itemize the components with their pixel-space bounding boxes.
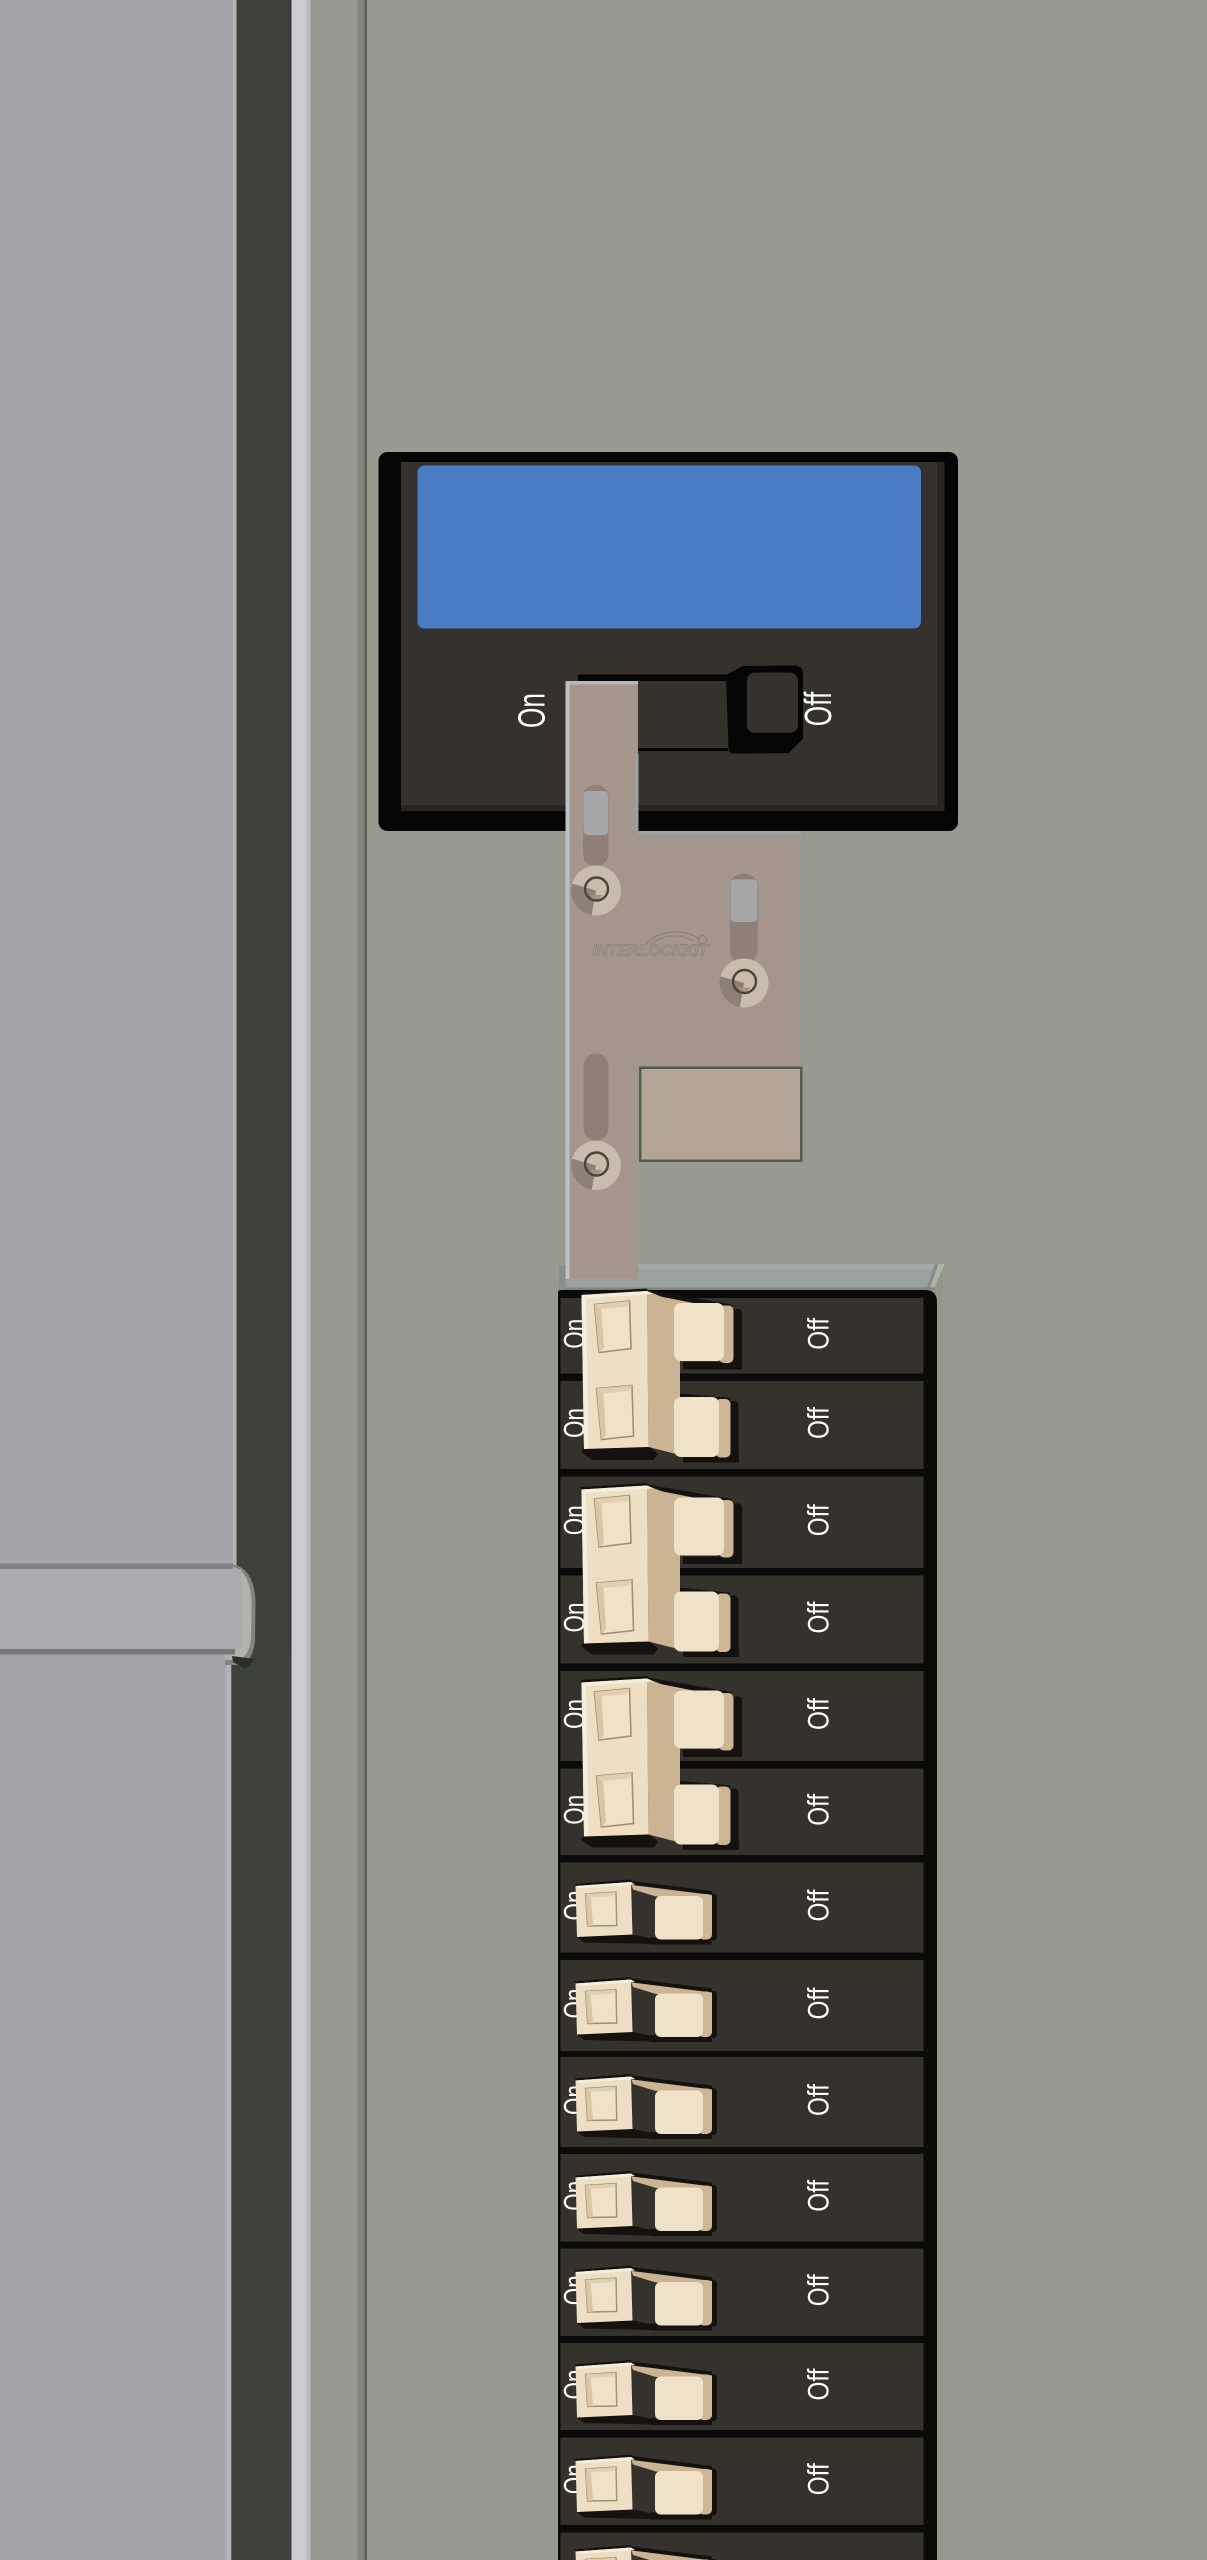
svg-text:Off: Off: [803, 1504, 836, 1537]
svg-text:Off: Off: [803, 1889, 836, 1922]
svg-text:Off: Off: [803, 2179, 836, 2212]
svg-text:Off: Off: [803, 1697, 836, 1730]
svg-text:Off: Off: [803, 1987, 836, 2020]
svg-text:Off: Off: [803, 2083, 836, 2116]
svg-text:Off: Off: [803, 2274, 836, 2307]
svg-text:Off: Off: [803, 1793, 836, 1826]
svg-text:On: On: [511, 693, 553, 728]
svg-text:Off: Off: [803, 1317, 836, 1350]
svg-text:Off: Off: [803, 1406, 836, 1439]
svg-text:Off: Off: [803, 1601, 836, 1634]
svg-text:Off: Off: [803, 2368, 836, 2401]
svg-text:Off: Off: [798, 691, 840, 726]
svg-text:Off: Off: [803, 2463, 836, 2496]
svg-text:INTERLOCKKIT: INTERLOCKKIT: [592, 943, 709, 960]
